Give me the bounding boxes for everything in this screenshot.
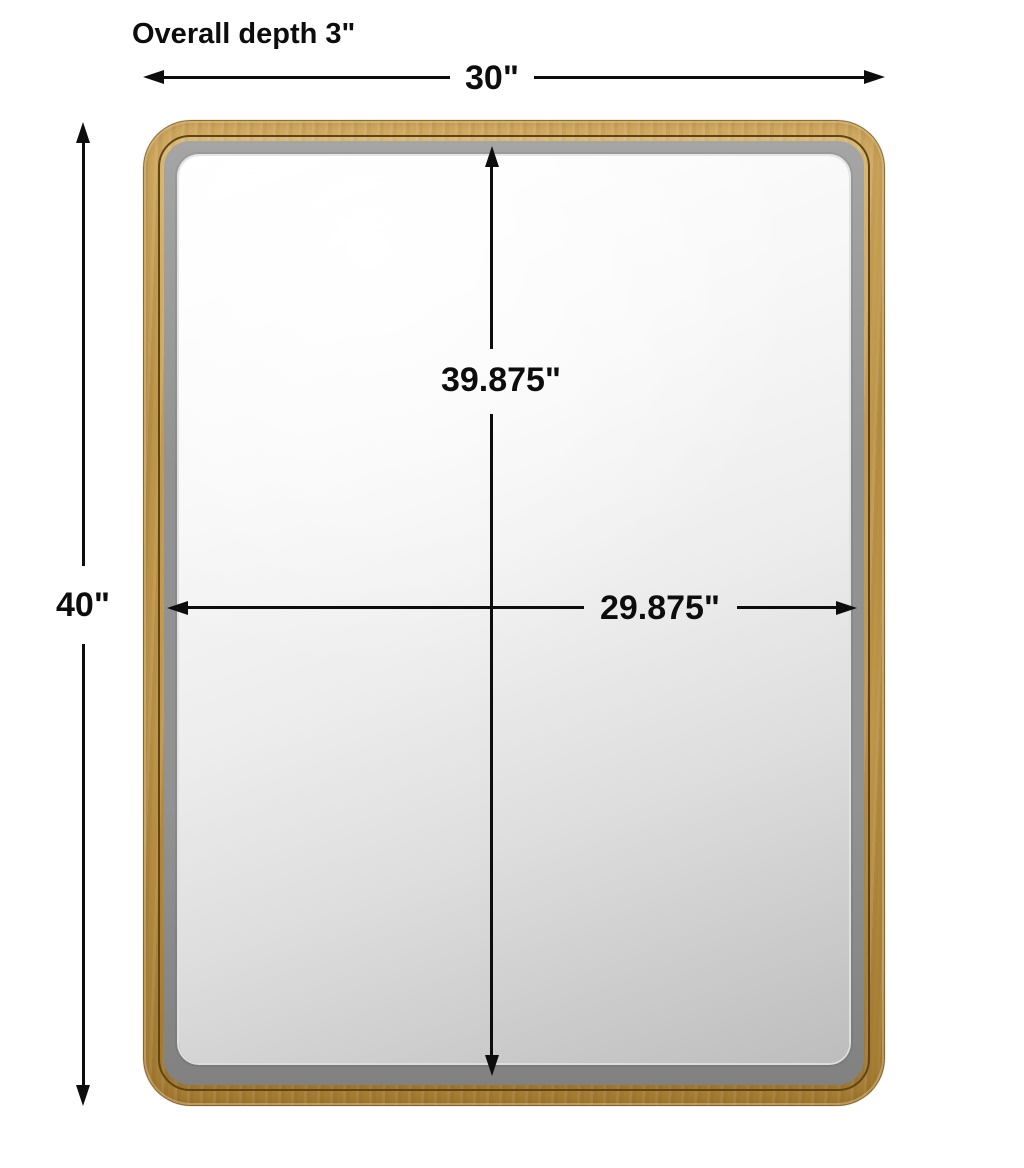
arrowhead-up-icon bbox=[76, 122, 90, 143]
overall-width-value: 30" bbox=[465, 61, 519, 95]
mirror-glass bbox=[179, 156, 849, 1063]
dimension-line bbox=[82, 644, 85, 1087]
mirror-bevel-edge bbox=[164, 141, 864, 1085]
dimension-line bbox=[534, 76, 866, 79]
mirror-frame-inner-lip bbox=[158, 135, 870, 1091]
dimension-diagram: Overall depth 3" 30" 40" 39.875" 29.875" bbox=[0, 0, 1024, 1168]
arrowhead-right-icon bbox=[864, 70, 885, 84]
mirror-frame bbox=[143, 120, 885, 1106]
arrowhead-left-icon bbox=[143, 70, 164, 84]
overall-depth-label: Overall depth 3" bbox=[132, 18, 355, 51]
arrowhead-down-icon bbox=[76, 1085, 90, 1106]
dimension-line bbox=[162, 76, 450, 79]
dimension-line bbox=[82, 142, 85, 566]
overall-height-value: 40" bbox=[56, 588, 110, 622]
